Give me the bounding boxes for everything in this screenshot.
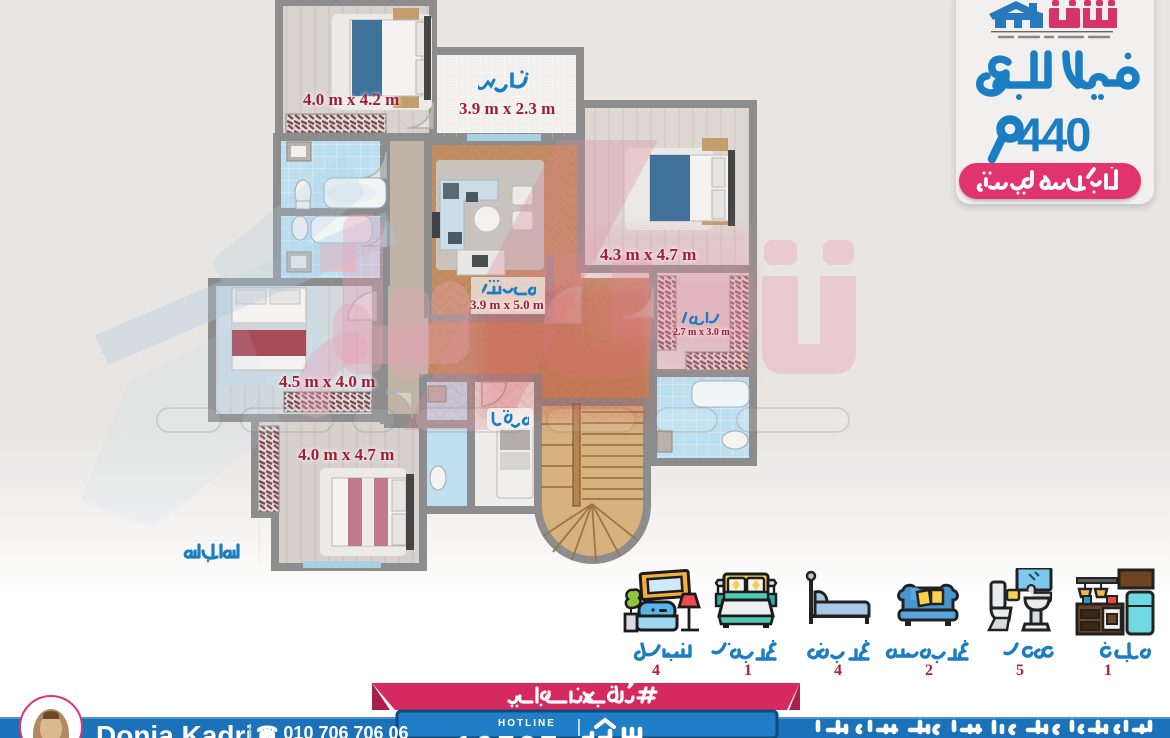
svg-text:19737: 19737 — [455, 729, 561, 738]
svg-text:HOTLINE: HOTLINE — [498, 718, 556, 729]
